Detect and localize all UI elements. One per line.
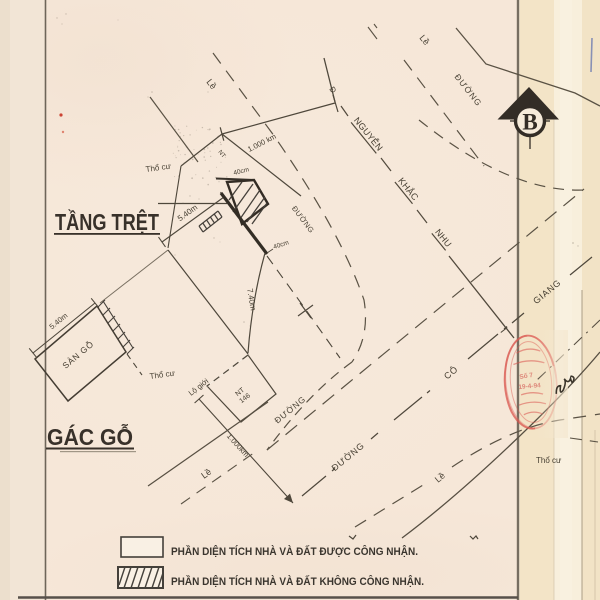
svg-text:Thổ cư: Thổ cư	[536, 456, 562, 465]
svg-text:GÁC GỖ: GÁC GỖ	[47, 422, 133, 450]
svg-text:B: B	[522, 110, 537, 135]
svg-text:PHẦN DIỆN TÍCH NHÀ VÀ ĐẤT ĐƯỢC: PHẦN DIỆN TÍCH NHÀ VÀ ĐẤT ĐƯỢC CÔNG NHẬN…	[171, 545, 418, 558]
svg-text:TẦNG TRỆT: TẦNG TRỆT	[55, 208, 159, 235]
svg-text:PHẦN DIỆN TÍCH NHÀ VÀ ĐẤT KHÔN: PHẦN DIỆN TÍCH NHÀ VÀ ĐẤT KHÔNG CÔNG NHẬ…	[171, 575, 424, 588]
